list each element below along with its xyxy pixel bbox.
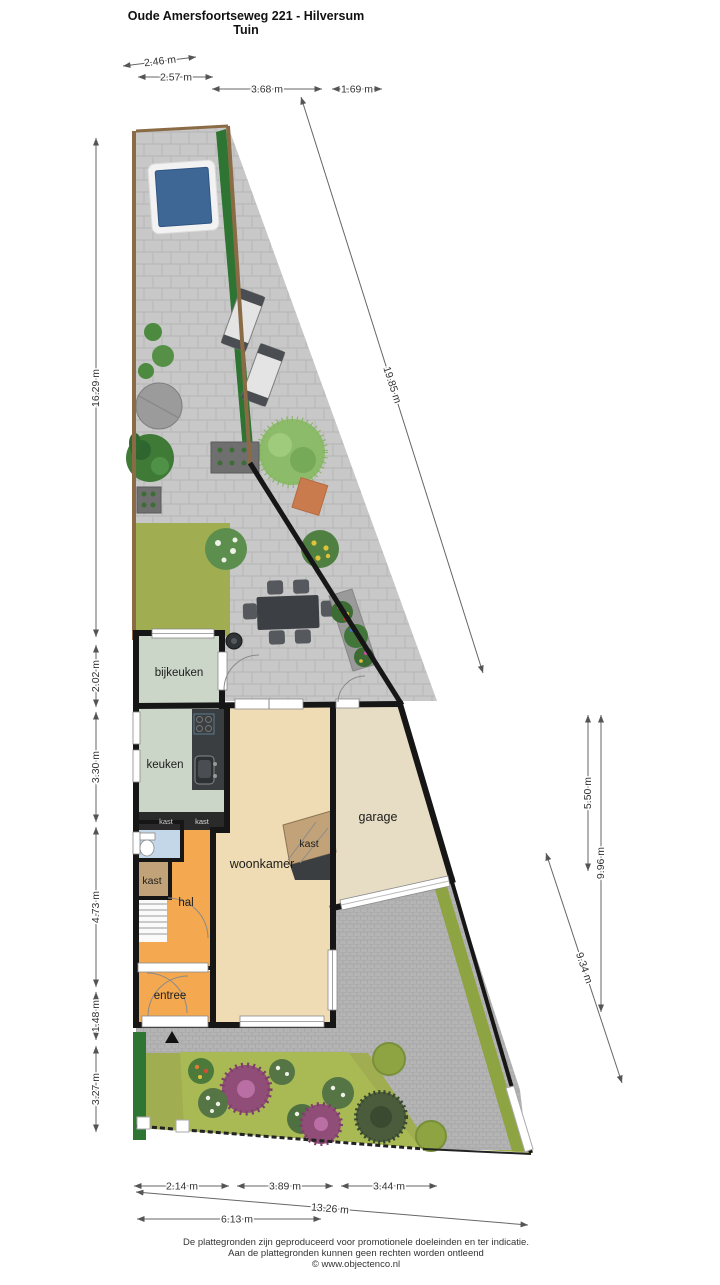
dim-2-46: 2.46 m <box>143 54 177 70</box>
room-garage <box>333 704 452 908</box>
dim-4-73: 4.73 m <box>90 891 102 923</box>
pool <box>148 160 220 235</box>
stairs <box>136 898 167 942</box>
dim-3-68: 3.68 m <box>251 84 283 96</box>
label-entree: entree <box>154 990 187 1002</box>
gate-bottom-1 <box>137 1117 150 1129</box>
label-woonkamer: woonkamer <box>229 857 295 871</box>
label-keuken: keuken <box>146 759 183 771</box>
dim-2-14: 2.14 m <box>166 1181 198 1193</box>
page-title: Oude Amersfoortseweg 221 - Hilversum <box>128 9 364 23</box>
dim-1-48: 1.48 m <box>90 1000 102 1032</box>
trimmed-bush-1 <box>373 1043 405 1075</box>
dim-13-26: 13.26 m <box>311 1201 350 1216</box>
house-path <box>136 1025 333 1053</box>
page-subtitle: Tuin <box>233 23 258 37</box>
dim-6-13: 6.13 m <box>221 1214 253 1226</box>
label-kast-woonkamer: kast <box>299 838 318 850</box>
trimmed-bush-2 <box>416 1121 446 1151</box>
purple-flower-2 <box>301 1104 341 1144</box>
dark-spiky-bush <box>356 1092 406 1142</box>
dim-1-69: 1.69 m <box>341 84 373 96</box>
label-kast-left: kast <box>142 875 161 887</box>
dim-3-27: 3.27 m <box>90 1073 102 1105</box>
label-garage: garage <box>359 810 398 824</box>
disclaimer-line-3: © www.objectenco.nl <box>312 1259 400 1270</box>
dim-2-57: 2.57 m <box>160 72 192 84</box>
dim-3-44: 3.44 m <box>373 1181 405 1193</box>
label-bijkeuken: bijkeuken <box>155 667 204 679</box>
parasol <box>136 383 182 429</box>
dim-2-02: 2.02 m <box>90 660 102 692</box>
dining-table <box>256 595 319 630</box>
dim-9-96: 9.96 m <box>595 847 607 879</box>
dim-3-30: 3.30 m <box>90 751 102 783</box>
tree-fluffy <box>259 419 325 485</box>
floor-plan-canvas: bijkeuken keuken kast kast kast hal woon… <box>0 0 720 1280</box>
dim-9-34: 9.34 m <box>573 951 595 985</box>
label-hal: hal <box>178 897 193 909</box>
disclaimer: De plattegronden zijn geproduceerd voor … <box>183 1237 529 1270</box>
disclaimer-line-1: De plattegronden zijn geproduceerd voor … <box>183 1237 529 1248</box>
disclaimer-line-2: Aan de plattegronden kunnen geen rechten… <box>228 1248 484 1259</box>
stove <box>194 714 214 734</box>
purple-flower-1 <box>222 1065 270 1113</box>
pool-water <box>155 167 212 227</box>
label-kast-mini-a: kast <box>159 817 174 826</box>
dim-3-89: 3.89 m <box>269 1181 301 1193</box>
dim-16-29: 16.29 m <box>90 369 102 407</box>
dim-19-85: 19.85 m <box>380 365 403 405</box>
gate-bottom-2 <box>176 1120 189 1132</box>
toilet-fixture <box>140 833 155 856</box>
dim-5-50: 5.50 m <box>582 777 594 809</box>
label-kast-mini-b: kast <box>195 817 210 826</box>
terrace-area <box>126 126 437 705</box>
